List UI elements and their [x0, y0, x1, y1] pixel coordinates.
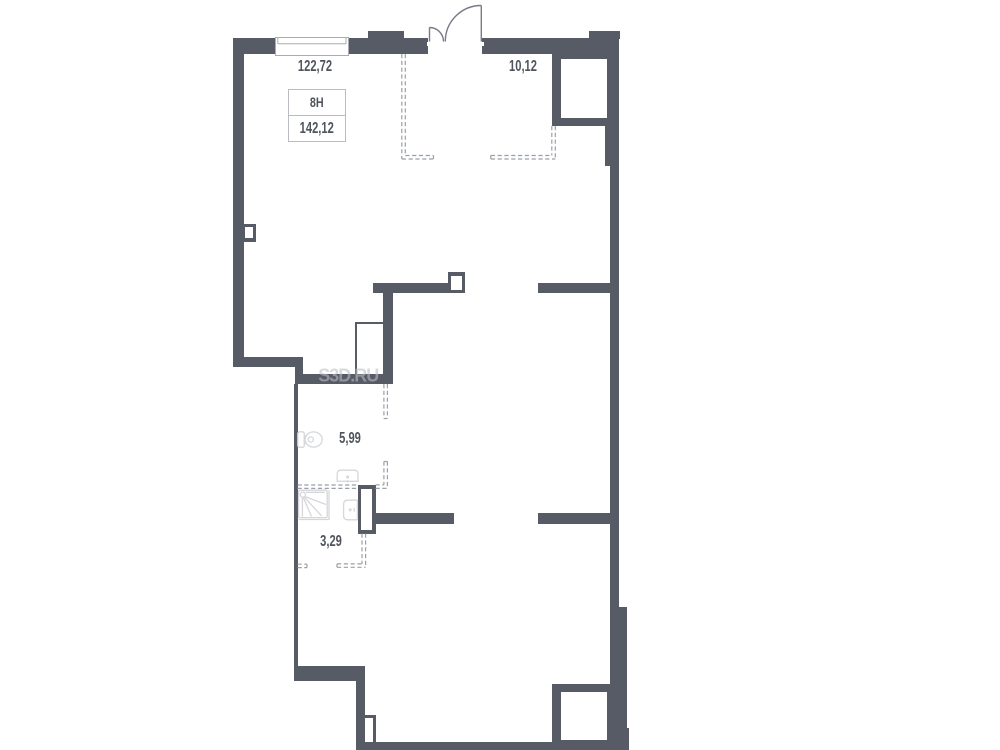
- svg-text:S3D.RU: S3D.RU: [318, 366, 378, 386]
